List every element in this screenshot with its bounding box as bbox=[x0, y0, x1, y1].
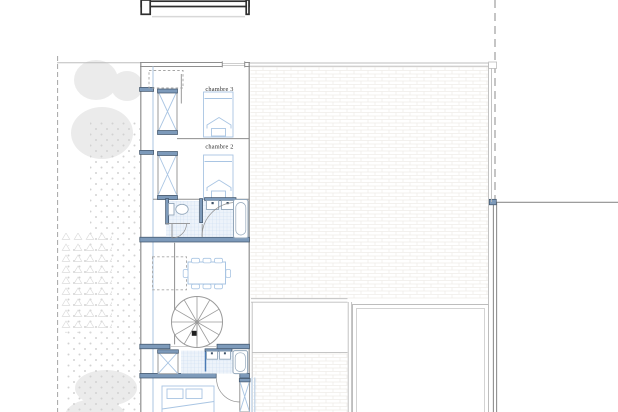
wardrobe-cap bbox=[158, 350, 179, 353]
slab-band-living bbox=[140, 344, 170, 349]
bed-pillow bbox=[186, 389, 202, 399]
neighbor-parapet-leg bbox=[246, 0, 249, 14]
neighbor-parapet-bar bbox=[141, 1, 249, 6]
neighbor-parapet-leg bbox=[141, 0, 150, 14]
spiral-staircase bbox=[172, 297, 223, 348]
terrace-corner-window bbox=[489, 62, 497, 68]
room-label-chambre2: chambre 2 bbox=[205, 144, 233, 151]
wc-wall bbox=[200, 199, 203, 223]
corner-post bbox=[489, 199, 496, 205]
wardrobe-cap bbox=[158, 152, 178, 156]
slab-band-bathroom bbox=[140, 237, 250, 242]
garden bbox=[57, 60, 143, 412]
wardrobe-cap bbox=[158, 89, 178, 93]
dining-table bbox=[188, 262, 226, 284]
neighbor-wall-vertical bbox=[493, 202, 496, 412]
room-label-chambre3: chambre 3 bbox=[205, 86, 233, 93]
toilet-tank bbox=[169, 204, 175, 216]
stair-landing-marker bbox=[192, 331, 197, 336]
terrace-north-edge bbox=[250, 63, 492, 66]
neighbor-building-top bbox=[141, 0, 249, 17]
north-window bbox=[222, 61, 244, 68]
terrace-south-edge bbox=[251, 299, 348, 303]
terrace-paving bbox=[251, 67, 489, 299]
wardrobe-cap bbox=[158, 131, 178, 135]
toilet-bowl bbox=[176, 204, 188, 214]
wardrobe-cap bbox=[239, 379, 250, 382]
bathroom-lower bbox=[158, 349, 248, 374]
facade-sill bbox=[140, 150, 154, 154]
terrace bbox=[250, 62, 497, 412]
shrub-triangles-area bbox=[58, 233, 112, 333]
floor-plan-drawing: chambre 3 chambre 2 bbox=[0, 0, 618, 412]
facade-sill bbox=[140, 87, 154, 91]
bed-pillow bbox=[167, 389, 183, 399]
tree-canopy bbox=[111, 71, 143, 101]
bathtub-inner bbox=[236, 203, 246, 236]
sink-tap bbox=[212, 202, 214, 204]
floor-plan-page: chambre 3 chambre 2 bbox=[0, 0, 618, 412]
sink-tap bbox=[224, 352, 226, 354]
bathtub-inner bbox=[235, 353, 245, 372]
slab-band-living bbox=[217, 344, 249, 349]
lower-court-paving bbox=[253, 353, 348, 412]
vanity-backsplash bbox=[205, 198, 237, 201]
tree-canopy bbox=[74, 60, 118, 100]
bathroom-main bbox=[166, 198, 248, 238]
sink-tap bbox=[211, 352, 213, 354]
lower-right-court bbox=[353, 305, 489, 412]
gravel-dots-area bbox=[90, 122, 140, 245]
lower-right-court-inner bbox=[357, 309, 485, 412]
